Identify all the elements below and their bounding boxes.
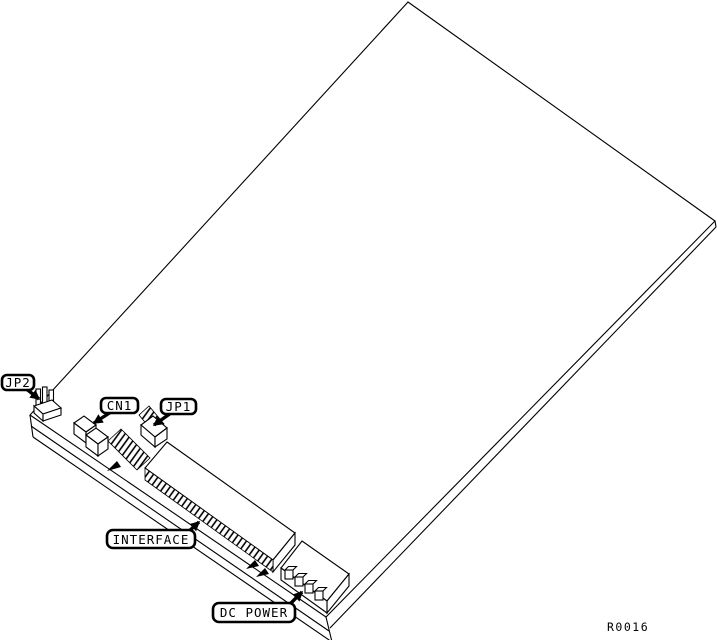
- dc-power-pin: [285, 570, 293, 579]
- callout-label: INTERFACE: [113, 532, 190, 547]
- board-corner-close: [326, 617, 332, 640]
- figure-reference-code: R0016: [607, 620, 649, 634]
- pcb-diagram: JP2 CN1 JP1 INTERFACE DC POWER R0016: [0, 0, 717, 640]
- dc-power-pin: [295, 577, 303, 586]
- callout-label: JP1: [166, 399, 192, 414]
- board-top-face: [30, 2, 715, 617]
- callout-jp2: JP2: [2, 375, 39, 399]
- dc-power-pin: [305, 584, 313, 593]
- figure-canvas: JP2 CN1 JP1 INTERFACE DC POWER R0016: [0, 0, 717, 640]
- callout-dc-power: DC POWER: [213, 592, 302, 622]
- dc-power-pin: [315, 591, 323, 600]
- callout-label: DC POWER: [220, 605, 288, 620]
- callout-interface: INTERFACE: [107, 522, 199, 548]
- callout-label: JP2: [5, 375, 31, 390]
- callout-label: CN1: [107, 398, 133, 413]
- board-edge-right-close: [715, 221, 716, 227]
